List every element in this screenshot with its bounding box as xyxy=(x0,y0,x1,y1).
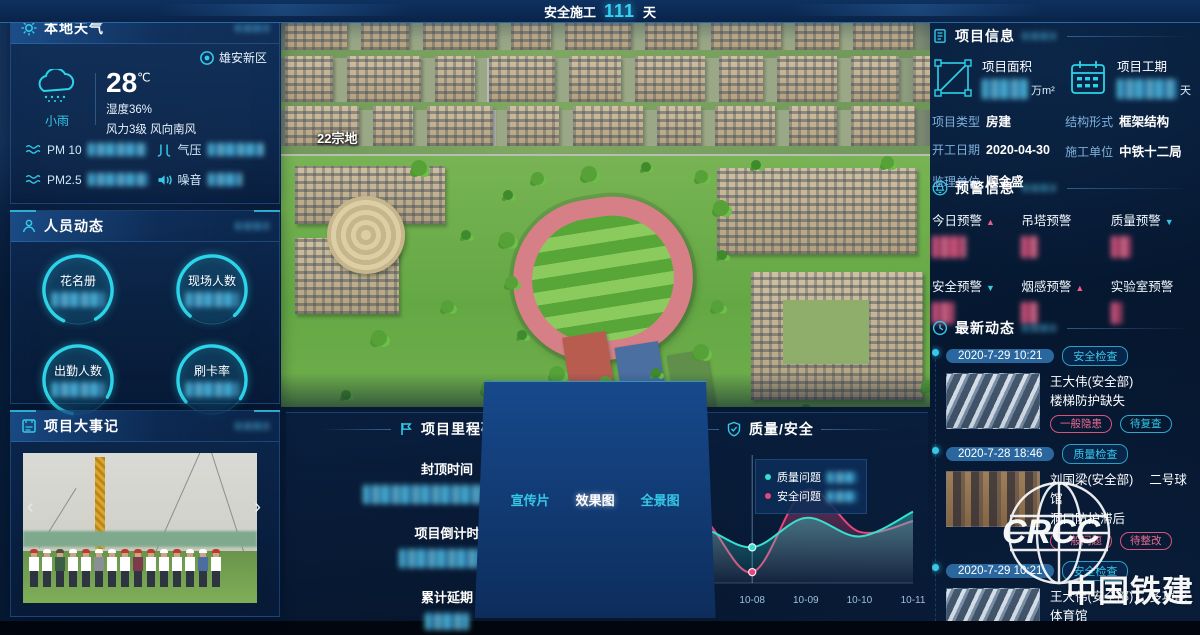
pressure-icon xyxy=(156,142,172,158)
feed-issue: 楼梯防护缺失 xyxy=(1050,392,1172,411)
svg-text:10-11: 10-11 xyxy=(901,595,925,606)
feed-tag: 一般隐患 xyxy=(1050,415,1112,433)
chart-title: 质量/安全 xyxy=(749,419,814,439)
svg-text:10-09: 10-09 xyxy=(793,595,819,606)
header-decor xyxy=(235,24,269,32)
legend-entry: 质量问题 xyxy=(765,469,857,485)
rain-cloud-icon xyxy=(34,69,80,105)
header-decor xyxy=(235,422,269,430)
humidity: 湿度36% xyxy=(106,101,196,117)
tab-effect-render[interactable]: 效果图 xyxy=(576,490,615,509)
wind: 风力3级 风向南风 xyxy=(106,121,196,137)
redacted-value xyxy=(425,613,469,630)
group-photo-people xyxy=(29,549,221,587)
redacted-value xyxy=(1117,79,1177,99)
project-events-panel: 项目大事记 ‹ › xyxy=(10,410,280,617)
ring-roster: 花名册 xyxy=(38,250,118,330)
project-info-title: 项目信息 xyxy=(955,26,1015,46)
area-measure-icon xyxy=(932,57,974,99)
redacted-value xyxy=(52,382,104,397)
feed-type-badge: 质量检查 xyxy=(1062,444,1128,464)
feed-person: 王大伟(安全部) xyxy=(1050,375,1133,389)
land-parcel-label: 22宗地 xyxy=(317,128,357,147)
legend-entry: 安全问题 xyxy=(765,488,857,504)
timeline-dot xyxy=(932,447,939,454)
redacted-value xyxy=(88,143,146,156)
event-photo[interactable] xyxy=(23,453,257,603)
condition-label: 小雨 xyxy=(25,112,89,129)
header-decor xyxy=(1022,32,1056,40)
person-icon xyxy=(21,218,37,234)
pm-icon xyxy=(25,142,41,158)
timeline-dot xyxy=(932,564,939,571)
safe-days-count: 111 xyxy=(604,1,635,22)
metric-pressure: 气压 xyxy=(156,141,269,158)
personnel-panel-title: 人员动态 xyxy=(44,216,104,236)
feed-date: 2020-7-28 18:46 xyxy=(946,447,1054,461)
feed-date: 2020-7-29 10:21 xyxy=(946,349,1054,363)
warnings-section: 预警信息 今日预警 吊塔预警 质量预警 安全预警 烟感预警 实验室预警 xyxy=(932,178,1192,324)
project-info-section: 项目信息 项目面积万m² 项目工期天 项目类型房建 结构形式框架结构 开工日期2… xyxy=(932,26,1192,190)
calendar-icon xyxy=(1067,57,1109,99)
metric-pm25: PM2.5 xyxy=(25,171,156,188)
redacted-value xyxy=(88,173,148,186)
chart-tooltip: 质量问题安全问题 xyxy=(755,459,867,514)
clock-icon xyxy=(932,320,948,336)
personnel-panel: 人员动态 花名册 现场人数 出勤人数 刷卡率 xyxy=(10,210,280,404)
redacted-value xyxy=(1111,236,1131,258)
crcc-abbr: CRCC xyxy=(1002,513,1101,551)
warnings-title: 预警信息 xyxy=(955,178,1015,198)
location-label: 雄安新区 xyxy=(219,49,267,66)
divider xyxy=(95,73,96,125)
memo-icon xyxy=(21,418,37,434)
timeline-dot xyxy=(932,349,939,356)
feed-thumbnail xyxy=(946,373,1040,429)
tab-promo-video[interactable]: 宣传片 xyxy=(511,490,550,509)
warning-safety: 安全预警 xyxy=(932,276,1021,324)
location-pin-icon xyxy=(199,50,215,66)
safe-days-prefix: 安全施工 xyxy=(544,2,596,21)
aerial-render-view[interactable] xyxy=(281,0,930,407)
carousel-prev-icon[interactable]: ‹ xyxy=(27,497,34,517)
weather-condition: 小雨 xyxy=(25,69,89,129)
warning-crane: 吊塔预警 xyxy=(1021,210,1110,258)
events-panel-title: 项目大事记 xyxy=(44,416,119,436)
tab-panorama[interactable]: 全景图 xyxy=(641,490,680,509)
ring-card-rate: 刷卡率 xyxy=(172,340,252,420)
scene-view-tabs: 宣传片 效果图 全景图 xyxy=(475,381,716,618)
crcc-logo: CRCC 中国铁建 xyxy=(996,471,1196,619)
ring-onsite: 现场人数 xyxy=(172,250,252,330)
redacted-value xyxy=(827,472,857,483)
redacted-value xyxy=(52,292,104,307)
document-icon xyxy=(932,28,948,44)
feed-tag: 待复查 xyxy=(1120,415,1172,433)
header-decor xyxy=(1022,184,1056,192)
redacted-value xyxy=(982,79,1028,99)
carousel-next-icon[interactable]: › xyxy=(254,497,261,517)
warning-quality: 质量预警 xyxy=(1111,210,1192,258)
info-start-date: 开工日期2020-04-30 xyxy=(932,141,1065,160)
safe-days-suffix: 天 xyxy=(643,2,656,21)
info-contractor: 施工单位中铁十二局 xyxy=(1065,141,1192,160)
pm-icon xyxy=(25,172,41,188)
stat-project-duration: 项目工期天 xyxy=(1067,56,1192,99)
stat-project-area: 项目面积万m² xyxy=(932,56,1057,99)
metric-noise: 噪音 xyxy=(156,171,269,188)
redacted-value xyxy=(932,236,966,258)
svg-text:10-08: 10-08 xyxy=(739,595,765,606)
redacted-value xyxy=(186,292,238,307)
header-decor xyxy=(1022,324,1056,332)
metric-pm10: PM 10 xyxy=(25,141,156,158)
redacted-value xyxy=(208,173,242,186)
latest-activity-title: 最新动态 xyxy=(955,318,1015,338)
info-project-type: 项目类型房建 xyxy=(932,111,1065,130)
header-decor xyxy=(235,222,269,230)
crcc-name: 中国铁建 xyxy=(1066,566,1194,611)
redacted-value xyxy=(827,491,857,502)
location-badge: 雄安新区 xyxy=(199,49,267,66)
ring-attendance: 出勤人数 xyxy=(38,340,118,420)
warning-smoke: 烟感预警 xyxy=(1021,276,1110,324)
alert-bell-icon xyxy=(932,180,948,196)
info-structure-type: 结构形式框架结构 xyxy=(1065,111,1192,130)
redacted-value xyxy=(186,382,238,397)
weather-panel: 本地天气 雄安新区 小雨 28℃ 湿度36% 风力3级 风向南风 PM 10 气… xyxy=(10,12,280,204)
warning-today: 今日预警 xyxy=(932,210,1021,258)
redacted-value xyxy=(208,143,264,156)
feed-item[interactable]: 2020-7-29 10:21安全检查 王大伟(安全部) 楼梯防护缺失 一般隐患… xyxy=(946,346,1192,433)
temperature: 28℃ xyxy=(106,69,196,97)
svg-text:10-10: 10-10 xyxy=(847,595,873,606)
top-title-bar: 安全施工 111 天 xyxy=(0,0,1200,23)
shield-check-icon xyxy=(726,421,742,437)
noise-icon xyxy=(156,172,172,188)
flag-icon xyxy=(398,421,414,437)
feed-type-badge: 安全检查 xyxy=(1062,346,1128,366)
redacted-value xyxy=(1021,236,1038,258)
warning-lab: 实验室预警 xyxy=(1111,276,1192,324)
